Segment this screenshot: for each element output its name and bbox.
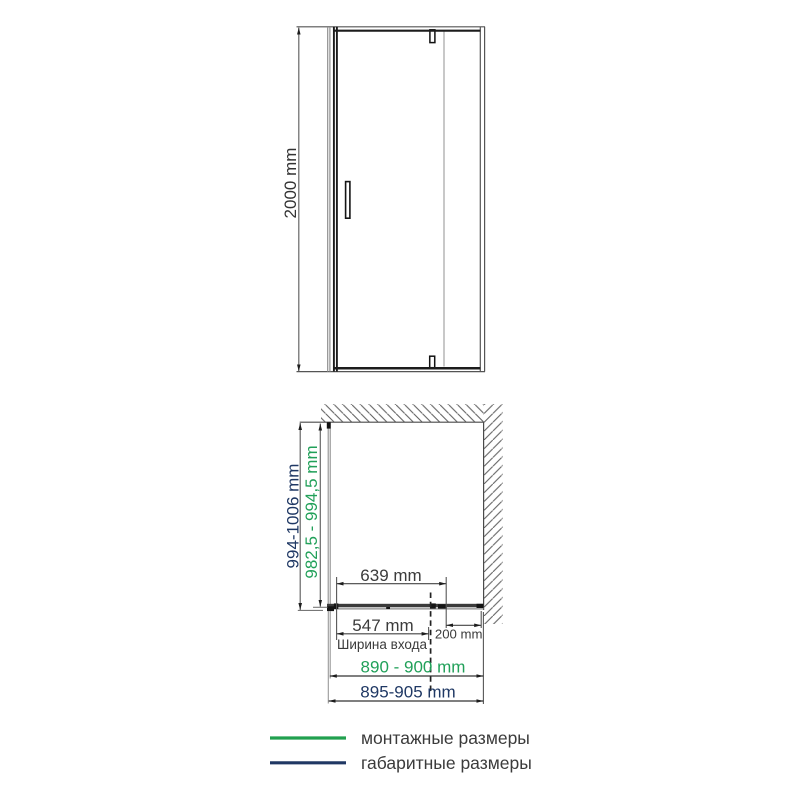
svg-text:895-905 mm: 895-905 mm: [360, 683, 455, 702]
svg-text:890 - 900 mm: 890 - 900 mm: [361, 658, 466, 677]
svg-text:Ширина входа: Ширина входа: [337, 637, 428, 652]
svg-text:габаритные размеры: габаритные размеры: [361, 753, 532, 773]
svg-text:200 mm: 200 mm: [435, 627, 483, 642]
svg-text:547 mm: 547 mm: [352, 616, 413, 635]
svg-text:2000 mm: 2000 mm: [281, 148, 300, 219]
svg-text:монтажные размеры: монтажные размеры: [361, 728, 530, 748]
svg-text:982,5 - 994,5 mm: 982,5 - 994,5 mm: [302, 445, 321, 578]
svg-text:994-1006 mm: 994-1006 mm: [283, 464, 302, 569]
svg-text:639 mm: 639 mm: [360, 566, 421, 585]
